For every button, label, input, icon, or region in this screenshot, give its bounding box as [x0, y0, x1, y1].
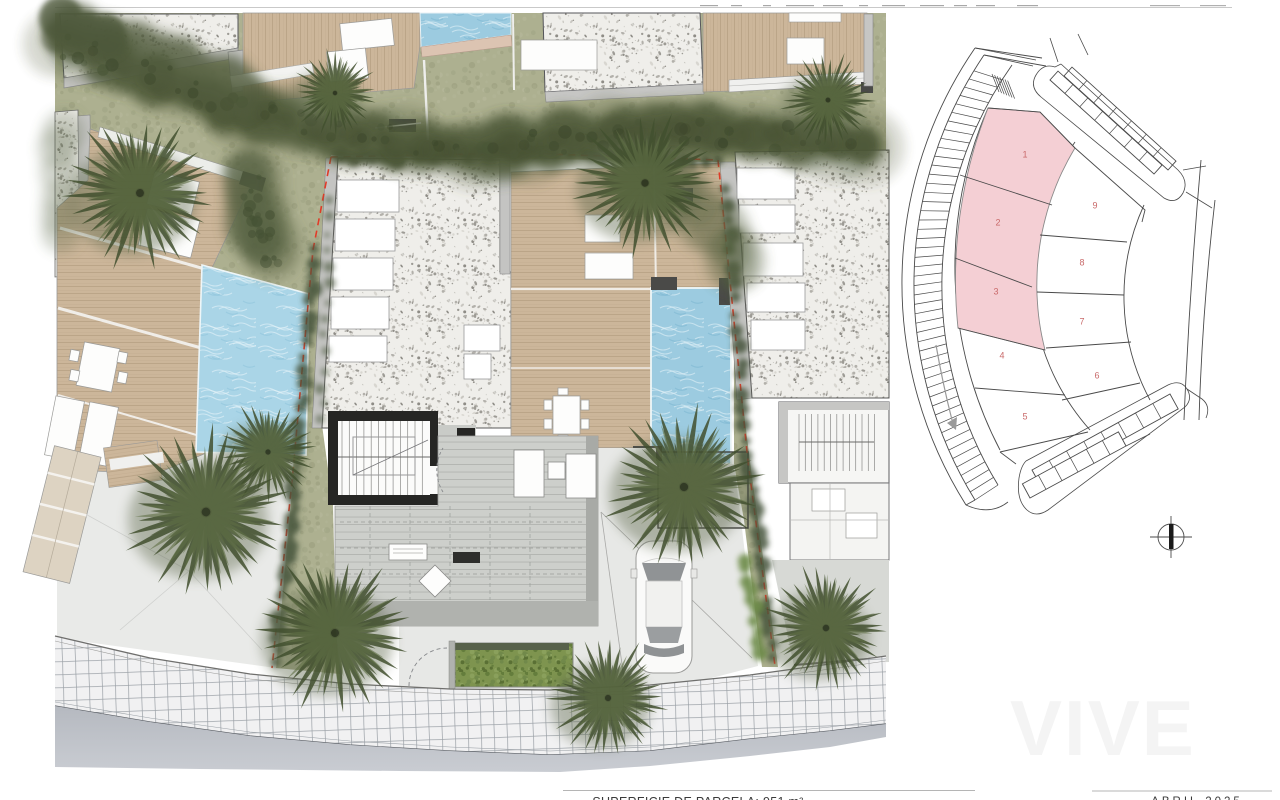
- svg-text:VIVE: VIVE: [1010, 684, 1196, 772]
- svg-text:5: 5: [1022, 412, 1027, 422]
- svg-text:SUPERFICIE DE PARCELA: 951 m²: SUPERFICIE DE PARCELA: 951 m²: [592, 795, 803, 800]
- svg-text:9: 9: [1092, 201, 1097, 211]
- svg-text:6: 6: [1094, 371, 1099, 381]
- svg-text:ABRIL 2025: ABRIL 2025: [1151, 796, 1243, 800]
- svg-text:7: 7: [1079, 317, 1084, 327]
- svg-text:3: 3: [993, 287, 998, 297]
- svg-text:1: 1: [1022, 150, 1027, 160]
- svg-text:8: 8: [1079, 258, 1084, 268]
- svg-text:4: 4: [999, 351, 1004, 361]
- svg-text:2: 2: [995, 218, 1000, 228]
